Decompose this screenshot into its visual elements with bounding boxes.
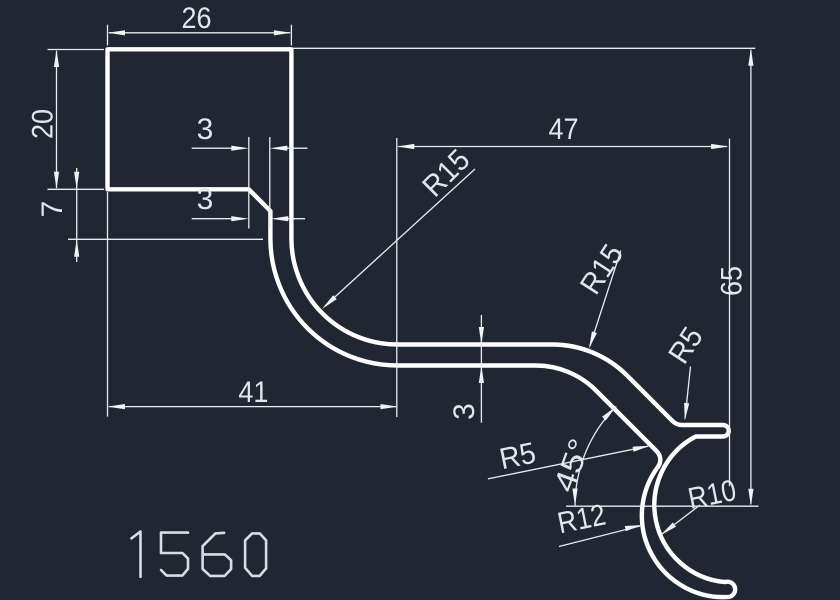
svg-text:3: 3 (197, 183, 214, 216)
svg-text:7: 7 (36, 201, 69, 218)
svg-text:3: 3 (448, 403, 481, 420)
svg-text:20: 20 (26, 109, 59, 139)
svg-text:41: 41 (238, 376, 268, 409)
svg-text:65: 65 (715, 266, 748, 296)
svg-text:26: 26 (182, 2, 212, 35)
svg-text:47: 47 (549, 113, 579, 146)
svg-text:R5: R5 (497, 437, 539, 477)
svg-text:3: 3 (197, 113, 214, 146)
